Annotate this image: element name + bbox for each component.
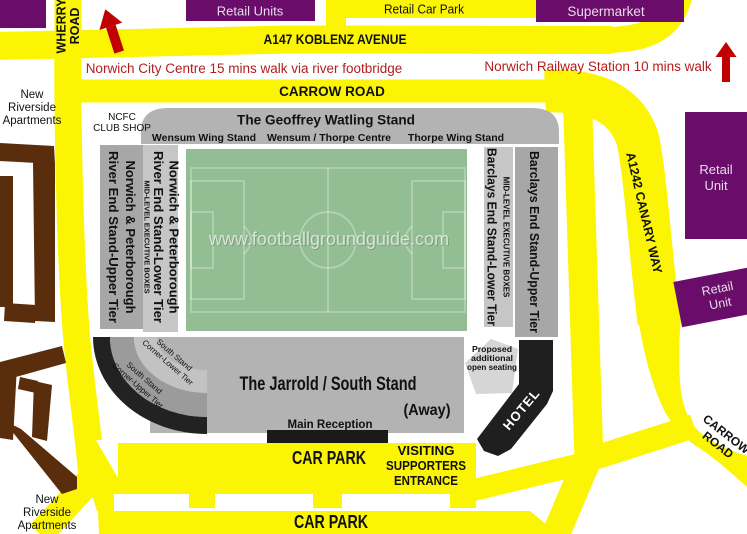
svg-text:The Jarrold / South Stand: The Jarrold / South Stand [240,374,417,395]
svg-text:CLUB SHOP: CLUB SHOP [93,123,151,134]
svg-text:Retail: Retail [699,162,732,177]
svg-text:River End Stand-Lower Tier: River End Stand-Lower Tier [151,151,166,323]
svg-text:Apartments: Apartments [18,520,77,532]
svg-text:www.footballgroundguide.com: www.footballgroundguide.com [208,229,449,249]
svg-text:NCFC: NCFC [108,112,136,123]
svg-text:Norwich City Centre 15 mins wa: Norwich City Centre 15 mins walk via riv… [86,61,403,76]
svg-text:MID-LEVEL EXECUTIVE BOXES: MID-LEVEL EXECUTIVE BOXES [502,177,511,298]
svg-text:Unit: Unit [704,178,728,193]
svg-text:MID-LEVEL EXECUTIVE BOXES: MID-LEVEL EXECUTIVE BOXES [143,180,152,293]
svg-text:Main Reception: Main Reception [288,419,373,431]
svg-text:Retail Units: Retail Units [217,4,284,19]
svg-text:open seating: open seating [467,362,517,372]
svg-text:CAR PARK: CAR PARK [294,512,368,532]
svg-text:(Away): (Away) [404,402,451,419]
svg-text:The Geoffrey Watling Stand: The Geoffrey Watling Stand [237,113,415,128]
svg-text:Barclays End Stand-Upper Tier: Barclays End Stand-Upper Tier [527,151,542,333]
svg-text:New: New [20,89,44,101]
svg-text:A147 KOBLENZ AVENUE: A147 KOBLENZ AVENUE [264,32,407,47]
svg-text:Norwich & Peterborough: Norwich & Peterborough [167,160,182,313]
svg-text:Riverside: Riverside [23,507,71,519]
svg-text:River End Stand-Upper Tier: River End Stand-Upper Tier [106,151,121,323]
svg-text:New: New [35,494,59,506]
svg-text:Norwich & Peterborough: Norwich & Peterborough [123,160,138,313]
svg-text:WHERRY: WHERRY [55,0,69,54]
svg-text:Apartments: Apartments [3,115,62,127]
svg-text:Supermarket: Supermarket [567,4,645,19]
svg-text:ROAD: ROAD [68,8,82,45]
svg-text:Riverside: Riverside [8,102,56,114]
svg-text:CAR PARK: CAR PARK [292,448,366,468]
svg-text:SUPPORTERS: SUPPORTERS [386,458,466,473]
svg-text:Thorpe Wing Stand: Thorpe Wing Stand [408,132,504,144]
svg-text:Retail Car Park: Retail Car Park [384,3,465,17]
svg-text:CARROW ROAD: CARROW ROAD [279,84,385,99]
svg-text:ENTRANCE: ENTRANCE [394,473,458,488]
svg-text:Norwich Railway Station 10 min: Norwich Railway Station 10 mins walk [484,59,712,74]
svg-text:VISITING: VISITING [398,443,455,458]
svg-text:Wensum Wing Stand: Wensum Wing Stand [152,132,256,144]
svg-text:Barclays End Stand-Lower Tier: Barclays End Stand-Lower Tier [484,148,499,326]
svg-text:Wensum / Thorpe Centre: Wensum / Thorpe Centre [267,132,391,144]
